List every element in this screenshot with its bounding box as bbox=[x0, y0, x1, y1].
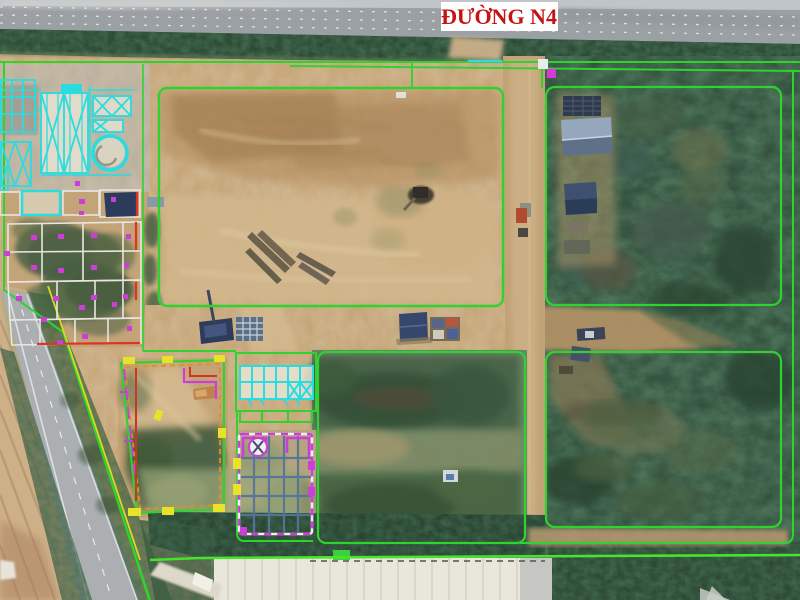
svg-text:ĐƯỜNG N4: ĐƯỜNG N4 bbox=[441, 4, 557, 29]
